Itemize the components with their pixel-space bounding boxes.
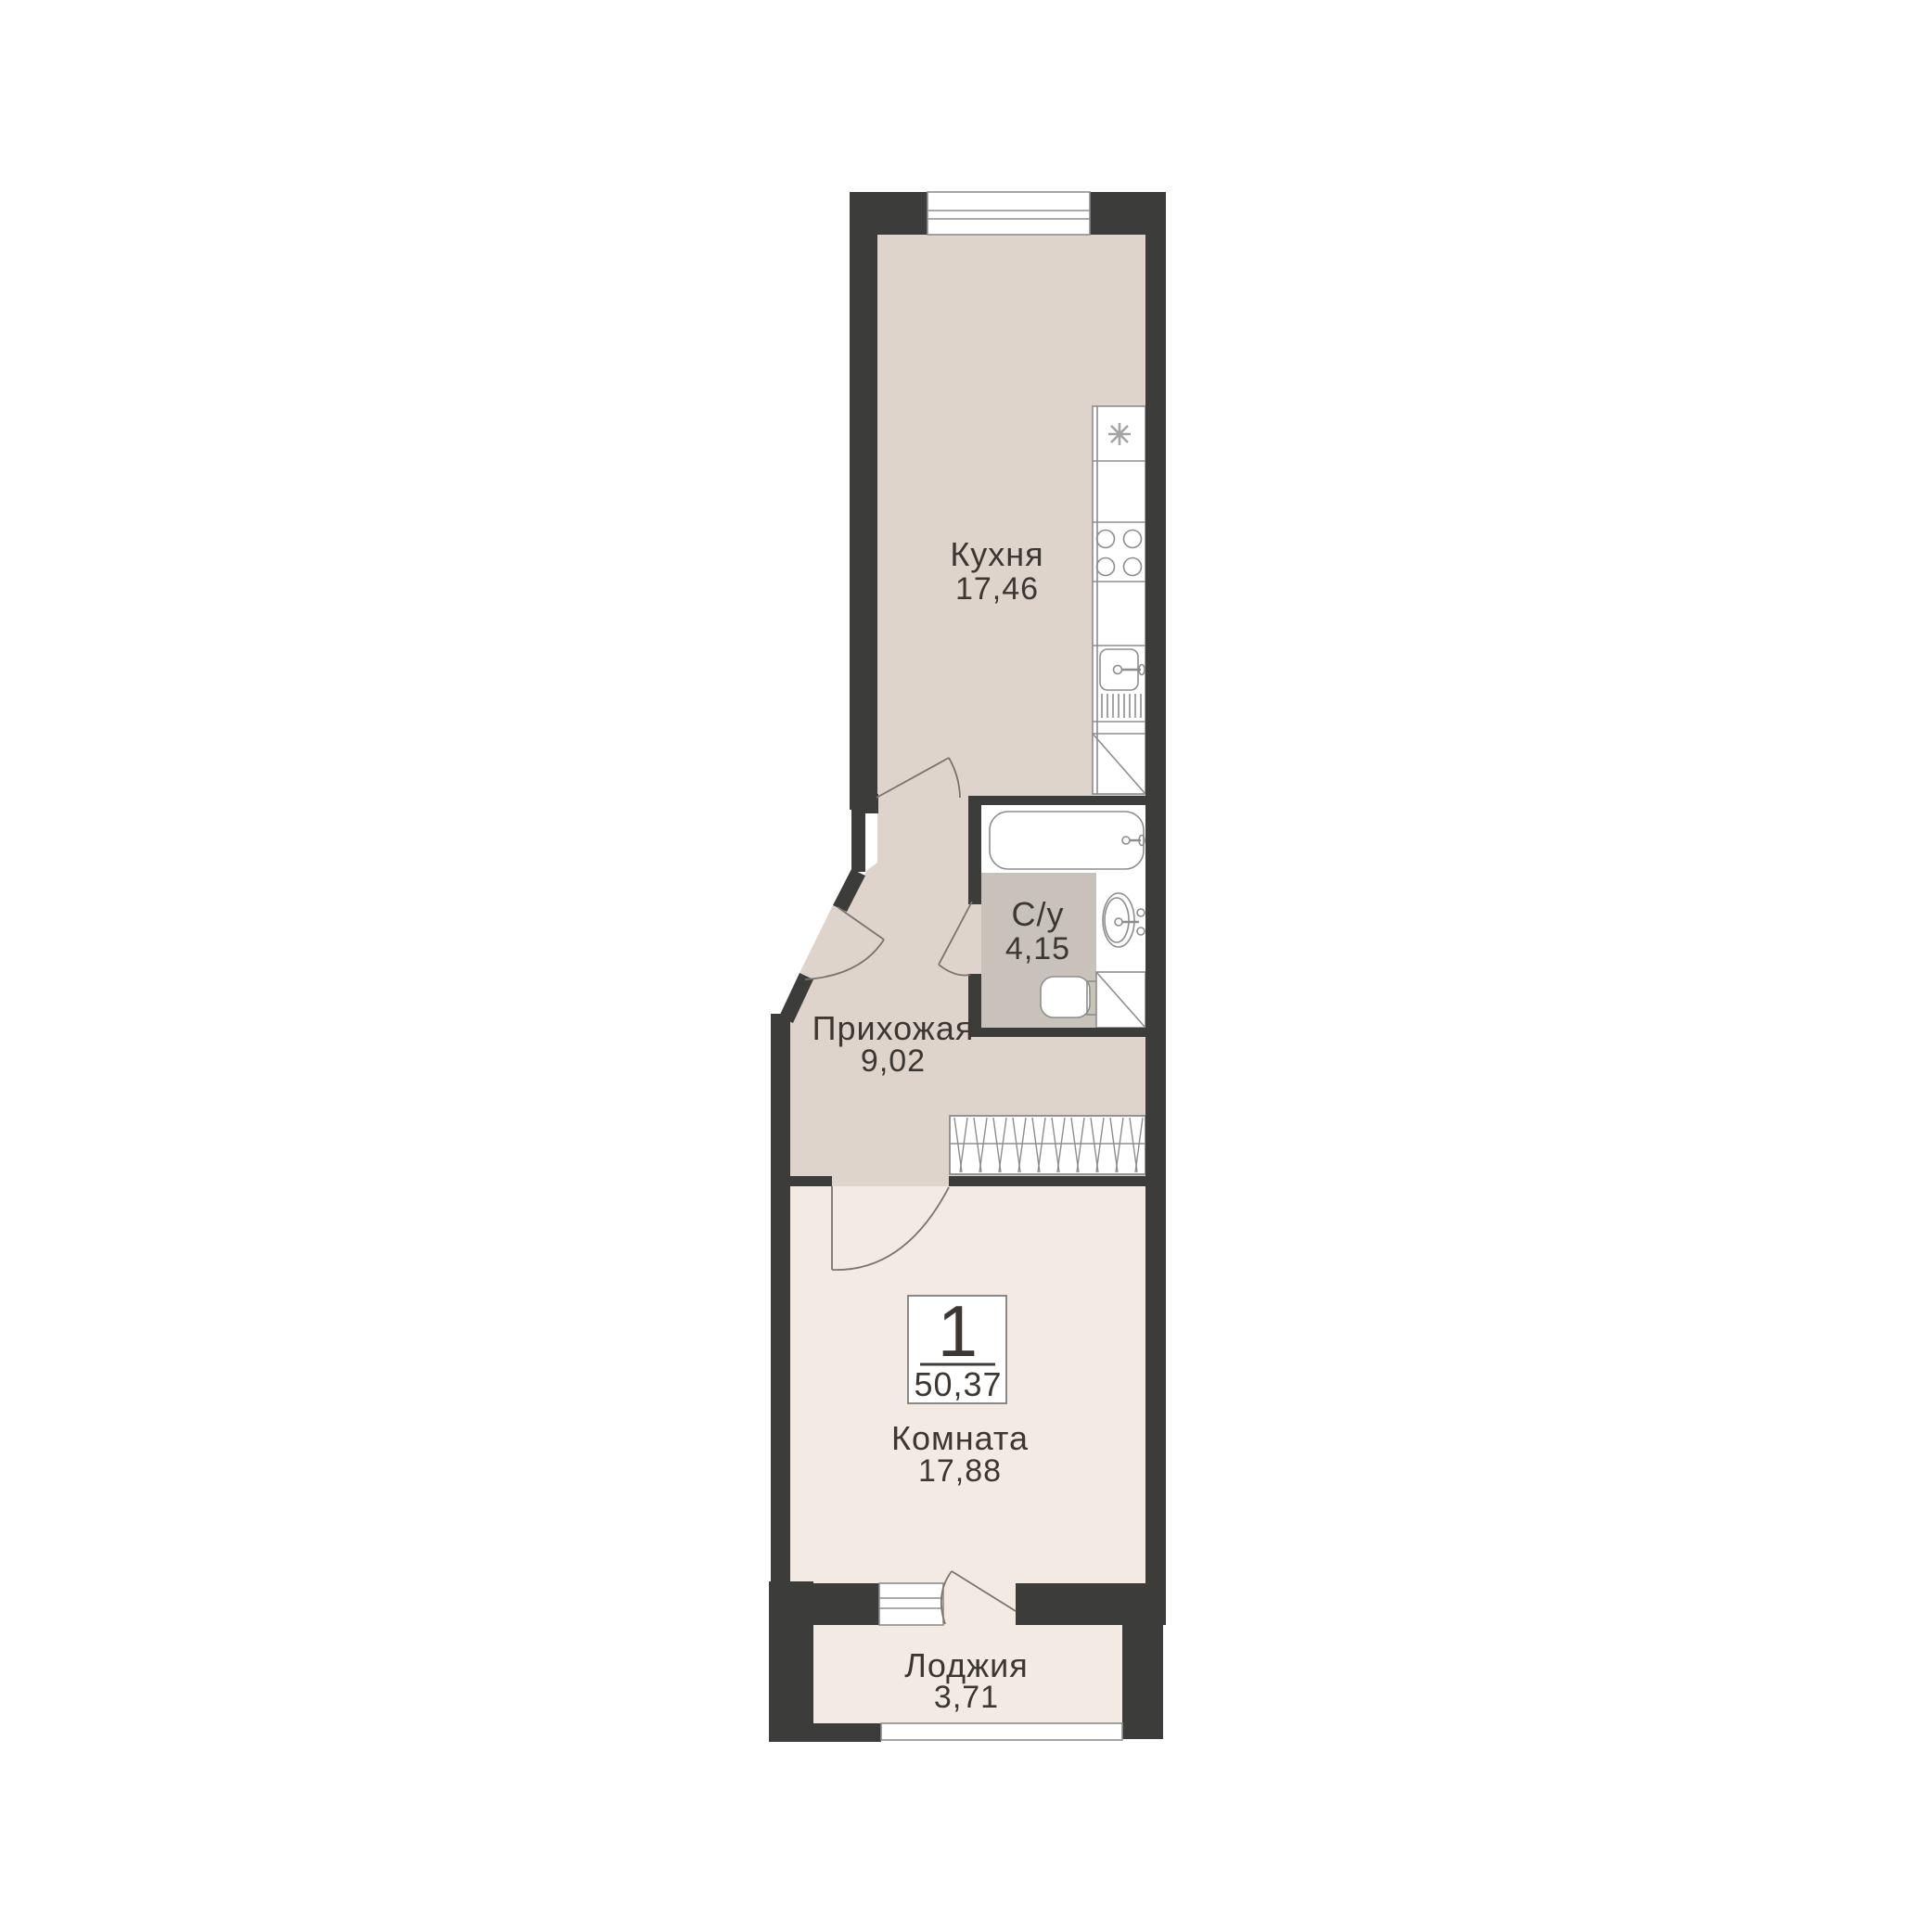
floor-plan-page: Кухня 17,46 С/у 4,15 Прихожая 9,02 Комна… [0,0,1932,1932]
wall-hall-room-right [949,1176,1145,1186]
wall-loggia-right [1122,1625,1163,1739]
wall-room-bottom-left [788,1583,879,1625]
wardrobe-icon [950,1116,1145,1174]
room-area: 17,88 [918,1453,1002,1489]
kitchen-label: Кухня [950,535,1043,573]
wall-bathroom-bottom [968,1028,1145,1037]
wall-left-lower [771,1014,790,1585]
window-loggia [881,1723,1122,1740]
bathroom-area: 4,15 [1005,931,1070,966]
bathroom-label: С/у [1012,895,1065,933]
wall-room-bottom-right [1016,1583,1145,1625]
duct-icon [1096,972,1145,1028]
appliance-asterisk-icon [1108,423,1131,445]
wall-bathroom-left-upper [968,796,981,904]
kitchen-counter [1093,406,1145,794]
unit-badge: 1 50,37 [908,1290,1006,1403]
wall-kitchen-door-stub [864,794,878,813]
floor-plan: Кухня 17,46 С/у 4,15 Прихожая 9,02 Комна… [0,0,1932,1932]
wall-left-mid [851,810,865,872]
window-room [879,1583,943,1625]
loggia-area: 3,71 [934,1680,999,1715]
bathtub-icon [990,812,1145,869]
hallway-area: 9,02 [861,1043,926,1079]
wall-right [1145,192,1166,1625]
room-label: Комната [891,1419,1029,1457]
hallway-label: Прихожая [812,1009,975,1047]
window-top [928,192,1090,235]
wall-kitchen-bathroom [968,796,1145,805]
wall-hall-room-left [788,1176,832,1186]
kitchen-area: 17,46 [955,571,1039,607]
badge-total-area: 50,37 [914,1365,1002,1403]
badge-rooms-count: 1 [938,1290,979,1372]
wall-left-upper [850,192,877,810]
wall-loggia-bottom-left [769,1723,881,1742]
loggia-label: Лоджия [904,1646,1029,1684]
